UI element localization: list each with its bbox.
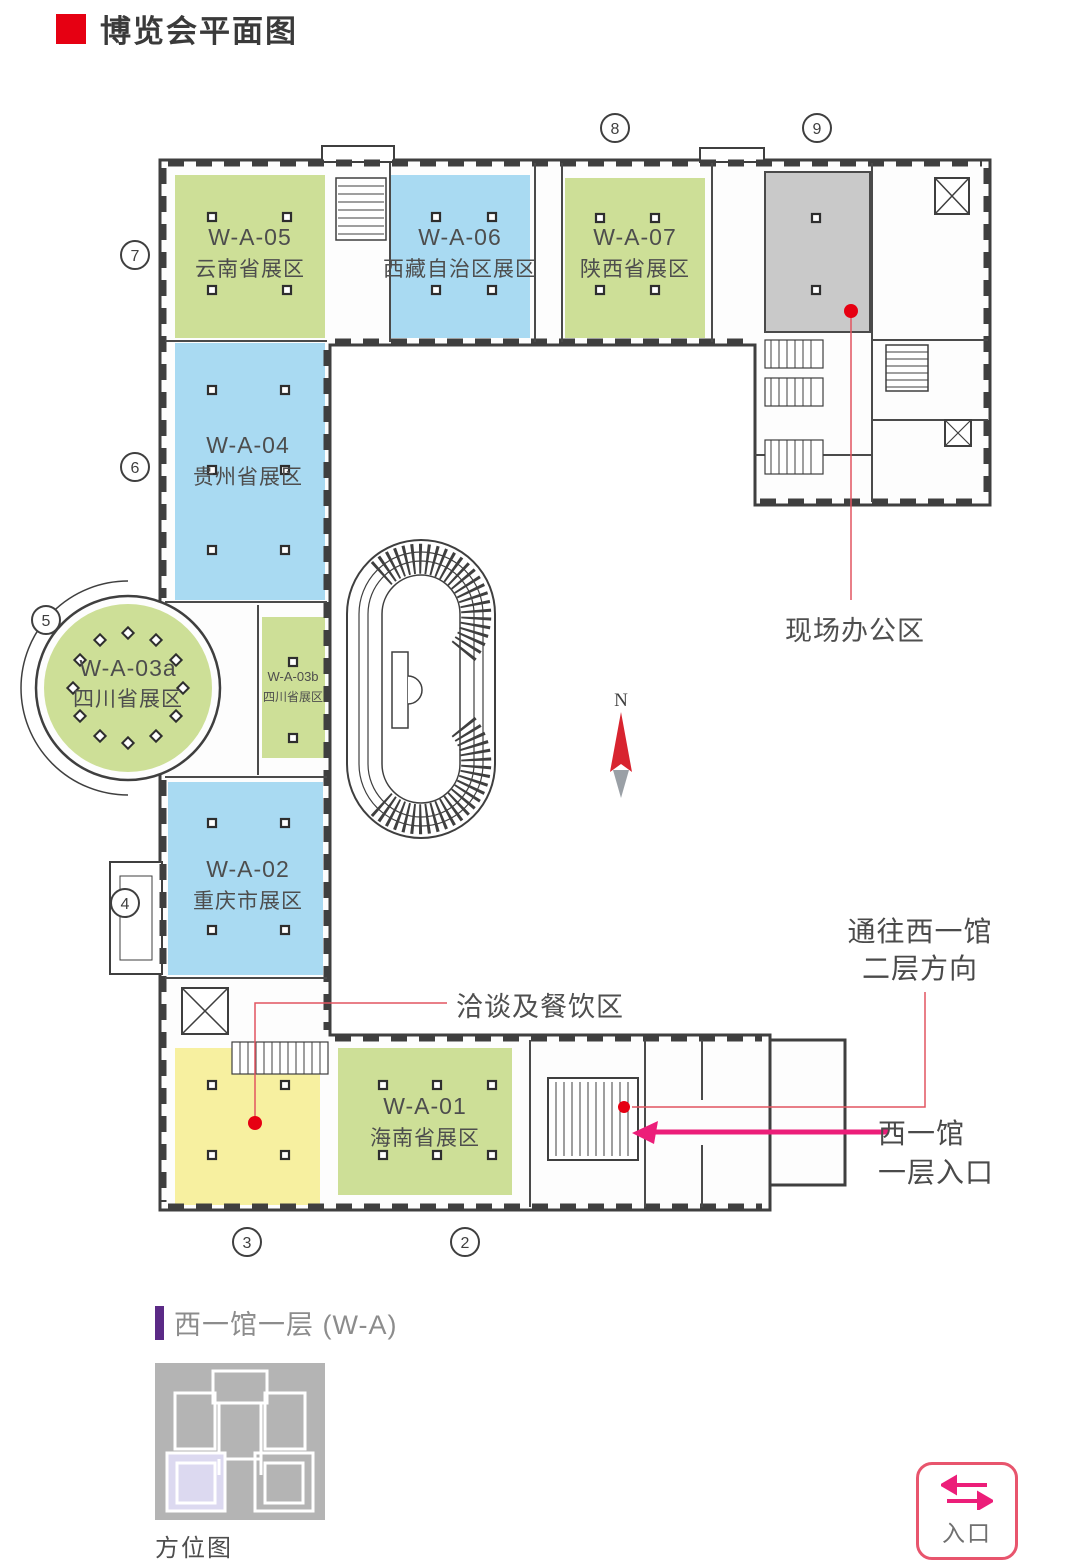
entrance-legend-button[interactable]: 入口 — [916, 1462, 1018, 1560]
zone-code: W-A-04 — [206, 432, 290, 458]
svg-text:9: 9 — [813, 121, 822, 138]
zone-name: 西藏自治区展区 — [383, 258, 537, 281]
entrance-label-1: 西一馆 — [878, 1118, 965, 1149]
zone-code: W-A-01 — [383, 1093, 467, 1119]
svg-text:3: 3 — [243, 1235, 252, 1252]
entrance-annex — [770, 1040, 845, 1185]
office-label: 现场办公区 — [785, 616, 925, 646]
stair-strip — [765, 340, 823, 368]
zone-name: 云南省展区 — [195, 258, 305, 281]
zone-name: 四川省展区 — [73, 688, 183, 711]
north-compass-icon: N — [610, 690, 632, 798]
entrance-label-2: 一层入口 — [878, 1157, 994, 1188]
dining-dot — [248, 1116, 262, 1130]
stair-strip — [765, 440, 823, 474]
dining-label: 洽谈及餐饮区 — [456, 992, 624, 1022]
swap-arrows-icon — [941, 1474, 993, 1510]
purple-bar-icon — [155, 1306, 164, 1340]
oval-ramp — [347, 540, 495, 838]
zone-name: 四川省展区 — [263, 690, 323, 704]
upstairs-label-2: 二层方向 — [862, 953, 978, 984]
legend-section: 西一馆一层 (W-A) — [155, 1303, 397, 1342]
upstairs-dot — [618, 1101, 630, 1113]
svg-text:5: 5 — [42, 613, 51, 630]
zone-name: 海南省展区 — [370, 1127, 480, 1150]
main-staircase — [548, 1078, 638, 1160]
zone-code: W-A-02 — [206, 856, 290, 882]
zone-name: 重庆市展区 — [193, 890, 303, 913]
svg-text:7: 7 — [131, 248, 140, 265]
legend-section-title: 西一馆一层 (W-A) — [174, 1303, 397, 1342]
svg-text:8: 8 — [611, 121, 620, 138]
zone-name: 陕西省展区 — [580, 258, 690, 281]
zone-code: W-A-05 — [208, 224, 292, 250]
office-dot — [844, 304, 858, 318]
staircase — [336, 178, 386, 240]
svg-text:4: 4 — [121, 896, 130, 913]
zone-wa06 — [390, 175, 530, 338]
zone-wa05 — [175, 175, 325, 338]
zone-code: W-A-03a — [79, 655, 176, 681]
zone-code: W-A-03b — [267, 669, 318, 684]
svg-text:2: 2 — [461, 1235, 470, 1252]
svg-text:N: N — [614, 690, 628, 711]
stair-strip — [765, 378, 823, 406]
zone-code: W-A-06 — [418, 224, 502, 250]
minimap-caption: 方位图 — [155, 1528, 233, 1563]
location-minimap — [155, 1363, 325, 1525]
upstairs-label-1: 通往西一馆 — [847, 916, 992, 947]
zone-name: 贵州省展区 — [193, 466, 303, 489]
svg-text:6: 6 — [131, 460, 140, 477]
zone-code: W-A-07 — [593, 224, 677, 250]
zone-wa01 — [338, 1048, 512, 1195]
entrance-button-label: 入口 — [942, 1514, 992, 1548]
